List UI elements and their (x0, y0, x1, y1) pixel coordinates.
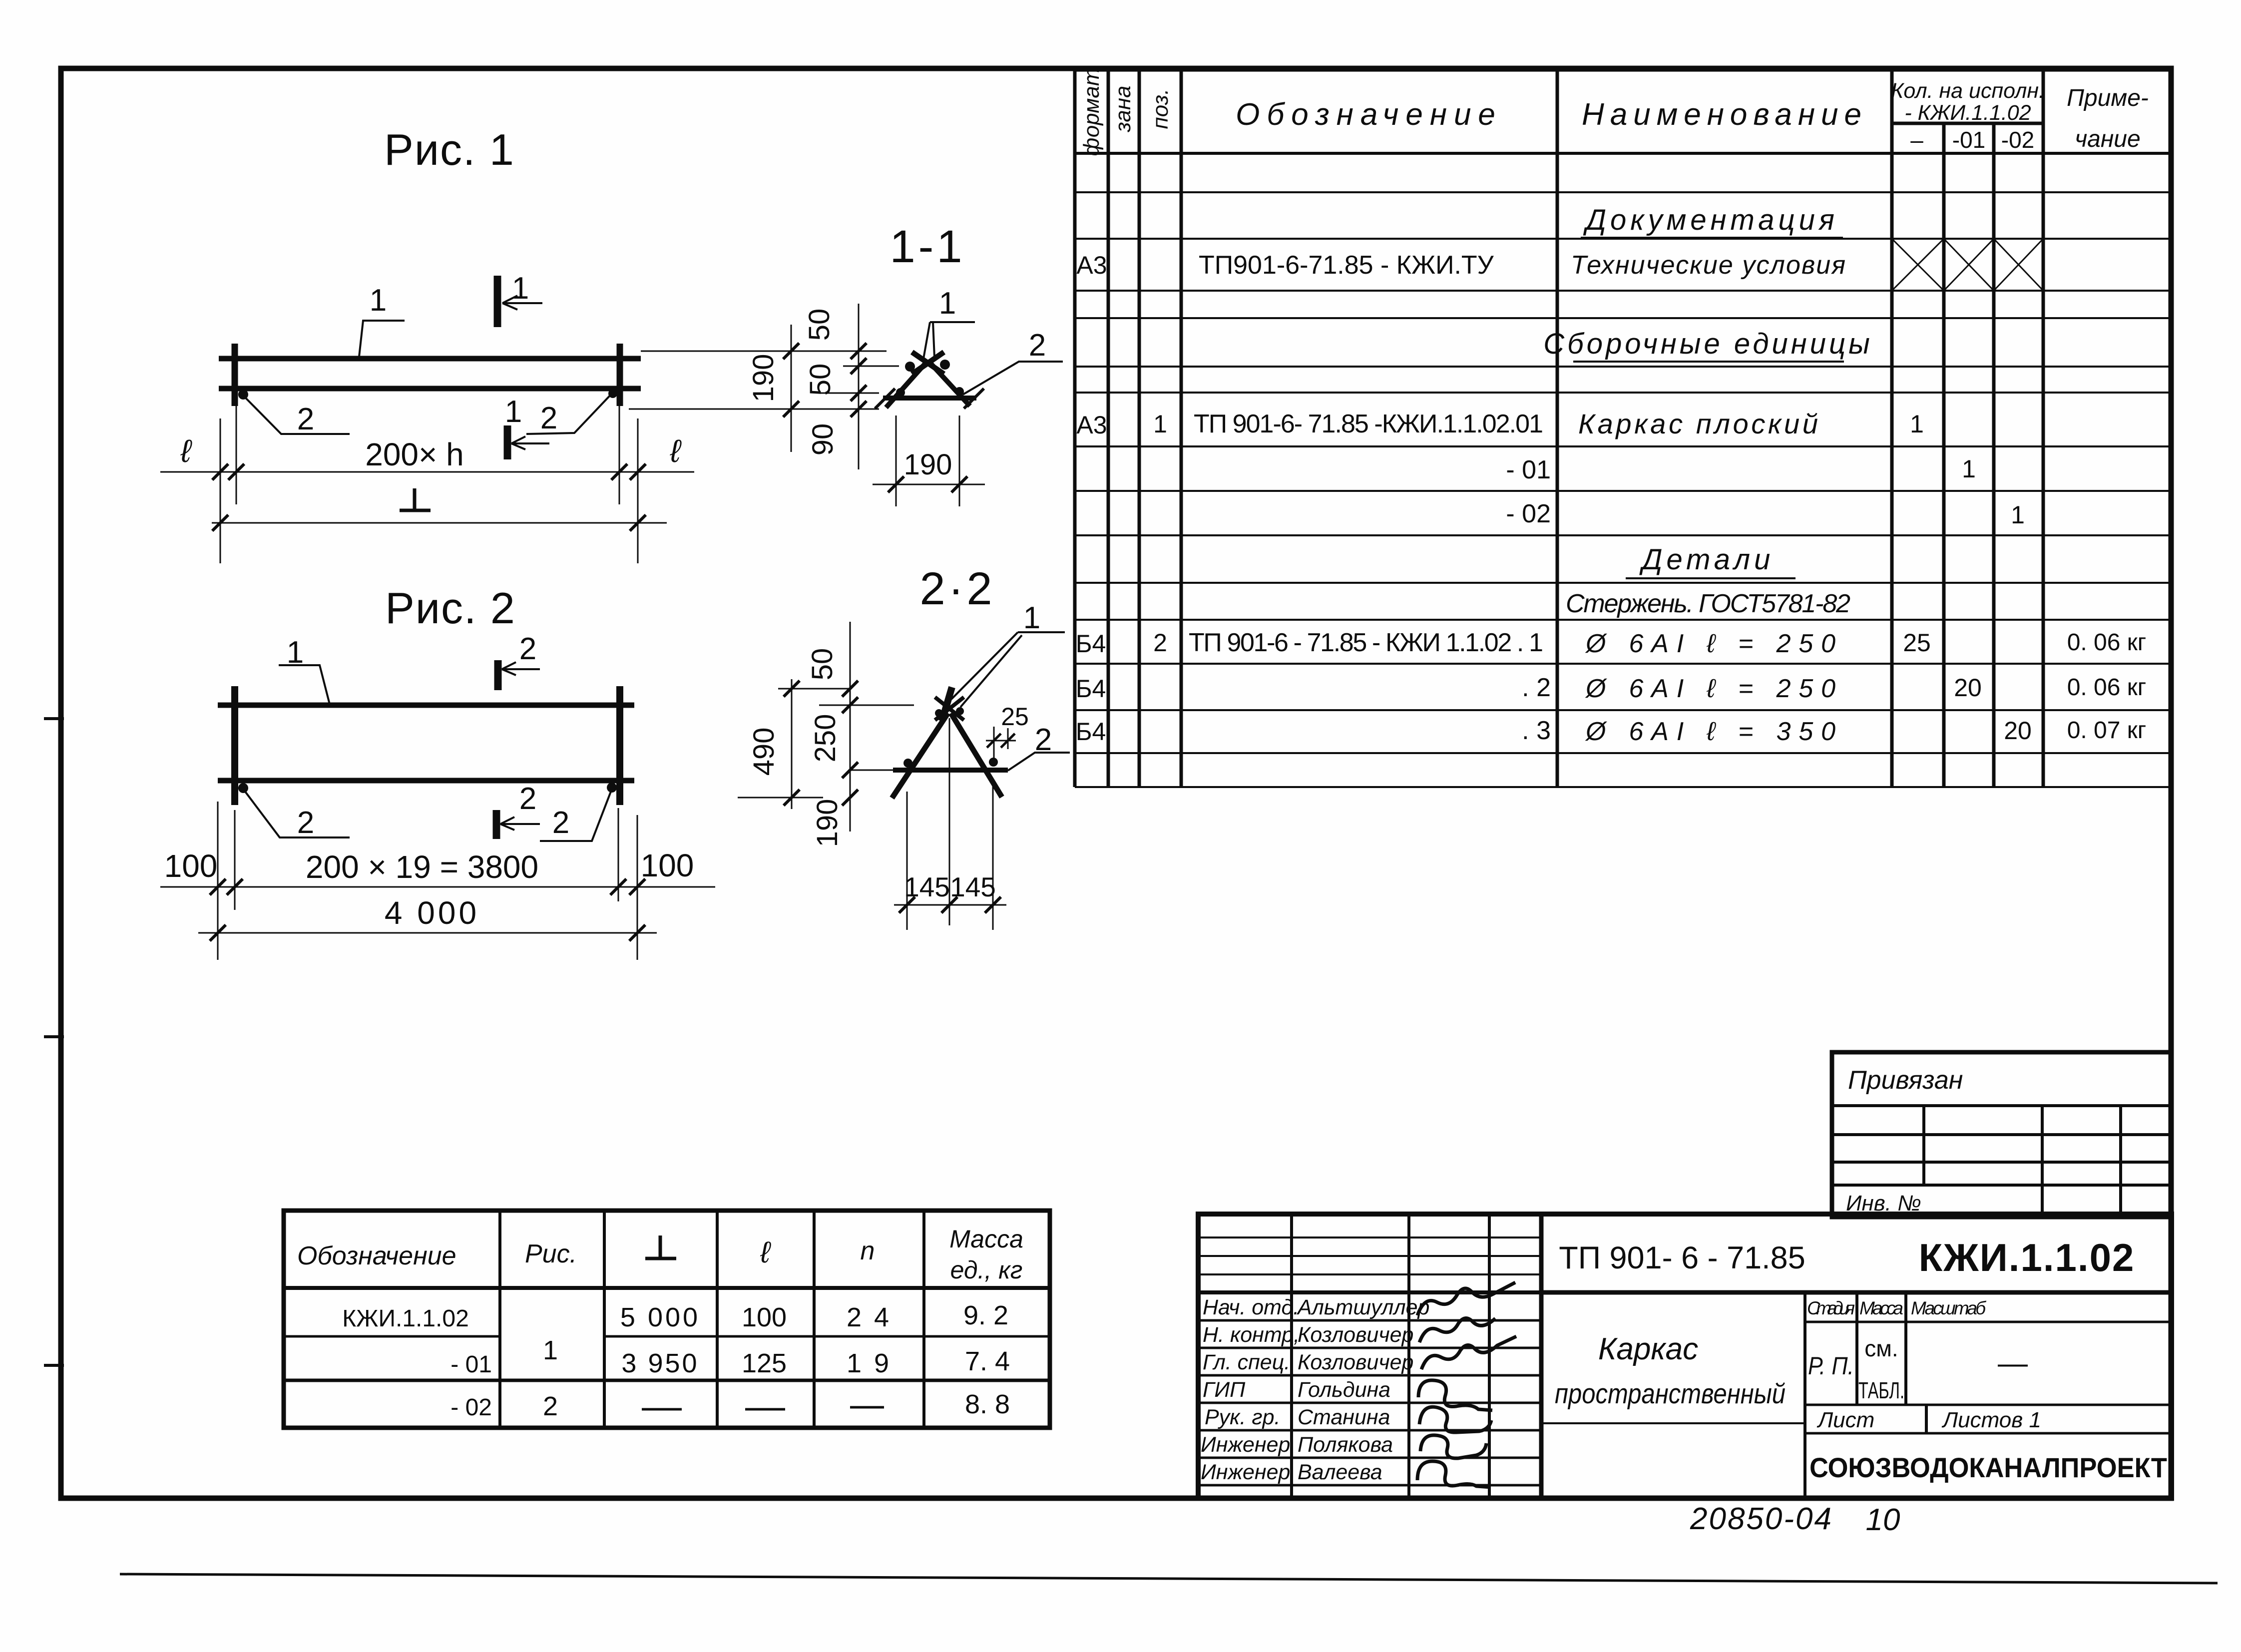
svg-text:2: 2 (1029, 328, 1046, 363)
svg-text:ТП 901- 6 - 71.85: ТП 901- 6 - 71.85 (1559, 1240, 1805, 1275)
svg-text:Масса: Масса (949, 1225, 1023, 1253)
svg-text:Инженер: Инженер (1201, 1433, 1290, 1457)
svg-text:Каркас: Каркас (1598, 1332, 1698, 1366)
svg-text:Обозначение: Обозначение (297, 1241, 456, 1270)
svg-text:2: 2 (543, 1391, 558, 1421)
svg-text:Наименование: Наименование (1582, 97, 1867, 132)
svg-text:Б4: Б4 (1076, 675, 1106, 703)
svg-text:1-1: 1-1 (890, 221, 965, 272)
svg-text:Р. П.: Р. П. (1808, 1352, 1854, 1380)
svg-text:145: 145 (904, 871, 950, 902)
svg-text:100: 100 (641, 847, 694, 883)
svg-text:ℓ: ℓ (760, 1236, 771, 1269)
svg-text:0. 06 кг: 0. 06 кг (2067, 674, 2147, 701)
svg-text:Рис. 1: Рис. 1 (384, 125, 515, 174)
svg-text:Кол. на исполн.: Кол. на исполн. (1891, 79, 2045, 103)
svg-text:190: 190 (747, 354, 780, 403)
svg-text:20: 20 (2004, 717, 2032, 745)
svg-text:-01: -01 (1952, 127, 1985, 153)
svg-text:100: 100 (742, 1302, 787, 1332)
svg-text:КЖИ.1.1.02: КЖИ.1.1.02 (342, 1305, 469, 1332)
svg-text:–: – (1910, 127, 1923, 153)
svg-text:5 000: 5 000 (620, 1302, 700, 1332)
svg-text:Гольдина: Гольдина (1298, 1378, 1390, 1402)
svg-text:- 01: - 01 (1506, 455, 1551, 484)
svg-text:2: 2 (552, 806, 569, 840)
svg-text:Технические условия: Технические условия (1571, 251, 1845, 280)
svg-text:СОЮЗВОДОКАНАЛПРОЕКТ: СОЮЗВОДОКАНАЛПРОЕКТ (1809, 1452, 2167, 1483)
svg-text:- 02: - 02 (1506, 499, 1551, 528)
svg-text:формат: формат (1079, 68, 1104, 156)
svg-text:Сборочные единицы: Сборочные единицы (1543, 328, 1873, 360)
svg-text:Инженер: Инженер (1201, 1460, 1290, 1484)
svg-text:зана: зана (1111, 85, 1135, 132)
svg-text:2: 2 (297, 402, 314, 436)
svg-text:200× h: 200× h (365, 436, 464, 472)
svg-text:ℓ: ℓ (180, 433, 192, 469)
svg-text:ТП 901-6- 71.85 -КЖИ.1.1.02.01: ТП 901-6- 71.85 -КЖИ.1.1.02.01 (1194, 410, 1543, 438)
svg-text:2: 2 (519, 782, 536, 816)
svg-text:2: 2 (519, 632, 536, 666)
svg-text:Альтшуллер: Альтшуллер (1296, 1295, 1429, 1319)
svg-text:- 02: - 02 (450, 1394, 492, 1421)
svg-text:Гл. спец.: Гл. спец. (1203, 1350, 1290, 1374)
svg-text:1: 1 (512, 271, 529, 306)
svg-text:ТП901-6-71.85 - КЖИ.ТУ: ТП901-6-71.85 - КЖИ.ТУ (1199, 251, 1494, 280)
svg-text:1: 1 (505, 395, 522, 429)
svg-text:50: 50 (803, 309, 836, 341)
svg-text:Б4: Б4 (1076, 718, 1106, 746)
svg-text:0. 07 кг: 0. 07 кг (2067, 717, 2147, 744)
svg-text:8. 8: 8. 8 (965, 1389, 1010, 1419)
svg-text:Б4: Б4 (1076, 630, 1106, 658)
svg-text:2: 2 (1153, 629, 1167, 657)
svg-text:поз.: поз. (1148, 89, 1173, 129)
svg-text:пространственный: пространственный (1555, 1378, 1786, 1410)
svg-text:чание: чание (2075, 126, 2140, 152)
svg-text:ГИП: ГИП (1203, 1378, 1246, 1402)
svg-text:2·2: 2·2 (920, 563, 995, 614)
svg-text:А3: А3 (1076, 411, 1107, 439)
svg-text:см.: см. (1864, 1335, 1898, 1361)
svg-text:Рис.: Рис. (525, 1239, 577, 1268)
svg-text:—: — (1998, 1346, 2028, 1380)
svg-text:Станина: Станина (1298, 1405, 1390, 1429)
svg-text:. 3: . 3 (1522, 716, 1551, 745)
svg-text:1: 1 (1962, 455, 1976, 483)
svg-text:4 000: 4 000 (385, 895, 479, 931)
svg-text:. 2: . 2 (1522, 673, 1551, 702)
svg-text:Н. контр,: Н. контр, (1203, 1323, 1300, 1347)
svg-text:50: 50 (806, 648, 839, 681)
svg-text:Козловичер: Козловичер (1298, 1350, 1413, 1374)
svg-text:1: 1 (1023, 601, 1040, 635)
svg-text:Масса: Масса (1859, 1298, 1903, 1318)
svg-text:200 × 19 = 3800: 200 × 19 = 3800 (306, 849, 538, 885)
svg-text:Привязан: Привязан (1848, 1066, 1963, 1095)
svg-text:ТАБЛ.: ТАБЛ. (1858, 1377, 1904, 1403)
svg-text:КЖИ.1.1.02: КЖИ.1.1.02 (1919, 1236, 2135, 1279)
svg-text:20850-04: 20850-04 (1690, 1502, 1833, 1536)
svg-text:2: 2 (540, 401, 557, 435)
svg-text:3 950: 3 950 (621, 1348, 699, 1378)
svg-text:50: 50 (804, 364, 837, 396)
svg-text:- КЖИ.1.1.02: - КЖИ.1.1.02 (1904, 101, 2031, 125)
svg-text:ед., кг: ед., кг (950, 1256, 1023, 1284)
svg-text:1: 1 (370, 283, 387, 318)
svg-text:7. 4: 7. 4 (965, 1346, 1010, 1376)
svg-text:10: 10 (1866, 1503, 1900, 1537)
svg-text:20: 20 (1954, 674, 1982, 702)
svg-text:Козловичер: Козловичер (1298, 1323, 1413, 1347)
svg-text:1: 1 (1910, 410, 1924, 438)
svg-text:100: 100 (164, 848, 218, 884)
svg-text:Документация: Документация (1583, 204, 1838, 236)
svg-text:-02: -02 (2001, 127, 2034, 153)
svg-text:2 4: 2 4 (847, 1302, 892, 1332)
svg-text:ℓ: ℓ (670, 433, 682, 469)
svg-text:Обозначение: Обозначение (1236, 97, 1502, 132)
svg-text:Рис. 2: Рис. 2 (385, 583, 516, 633)
svg-text:ТП 901-6 - 71.85 - КЖИ 1.1.02: ТП 901-6 - 71.85 - КЖИ 1.1.02 . 1 (1189, 628, 1543, 657)
svg-text:1: 1 (1153, 410, 1167, 438)
svg-text:250: 250 (809, 714, 842, 763)
svg-text:Нач. отд.: Нач. отд. (1203, 1295, 1299, 1319)
svg-text:490: 490 (748, 728, 780, 776)
svg-text:2: 2 (297, 806, 314, 840)
svg-text:1: 1 (2011, 501, 2025, 529)
svg-text:Полякова: Полякова (1298, 1433, 1393, 1457)
svg-text:Стадия: Стадия (1807, 1298, 1855, 1318)
svg-text:25: 25 (1903, 629, 1931, 657)
svg-text:Стержень. ГОСТ5781-82: Стержень. ГОСТ5781-82 (1566, 589, 1850, 618)
svg-text:Листов 1: Листов 1 (1941, 1408, 2041, 1432)
svg-text:1: 1 (543, 1335, 558, 1365)
svg-text:Масштаб: Масштаб (1911, 1298, 1986, 1318)
svg-text:Детали: Детали (1639, 543, 1775, 576)
svg-text:145: 145 (950, 871, 996, 902)
svg-text:125: 125 (742, 1348, 787, 1378)
svg-text:190: 190 (904, 448, 952, 481)
svg-text:190: 190 (811, 799, 844, 847)
svg-text:9. 2: 9. 2 (963, 1300, 1008, 1330)
svg-text:Приме-: Приме- (2067, 85, 2149, 111)
svg-text:0. 06 кг: 0. 06 кг (2067, 629, 2147, 656)
svg-text:Валеева: Валеева (1298, 1460, 1382, 1484)
svg-text:1: 1 (939, 286, 956, 321)
svg-text:- 01: - 01 (450, 1351, 492, 1378)
svg-text:А3: А3 (1076, 251, 1107, 279)
svg-text:90: 90 (807, 423, 839, 456)
svg-text:1 9: 1 9 (847, 1348, 892, 1378)
svg-text:Рук. гр.: Рук. гр. (1205, 1405, 1280, 1429)
svg-text:25: 25 (1001, 703, 1029, 731)
svg-text:n: n (861, 1237, 875, 1265)
svg-text:Лист: Лист (1816, 1408, 1874, 1432)
